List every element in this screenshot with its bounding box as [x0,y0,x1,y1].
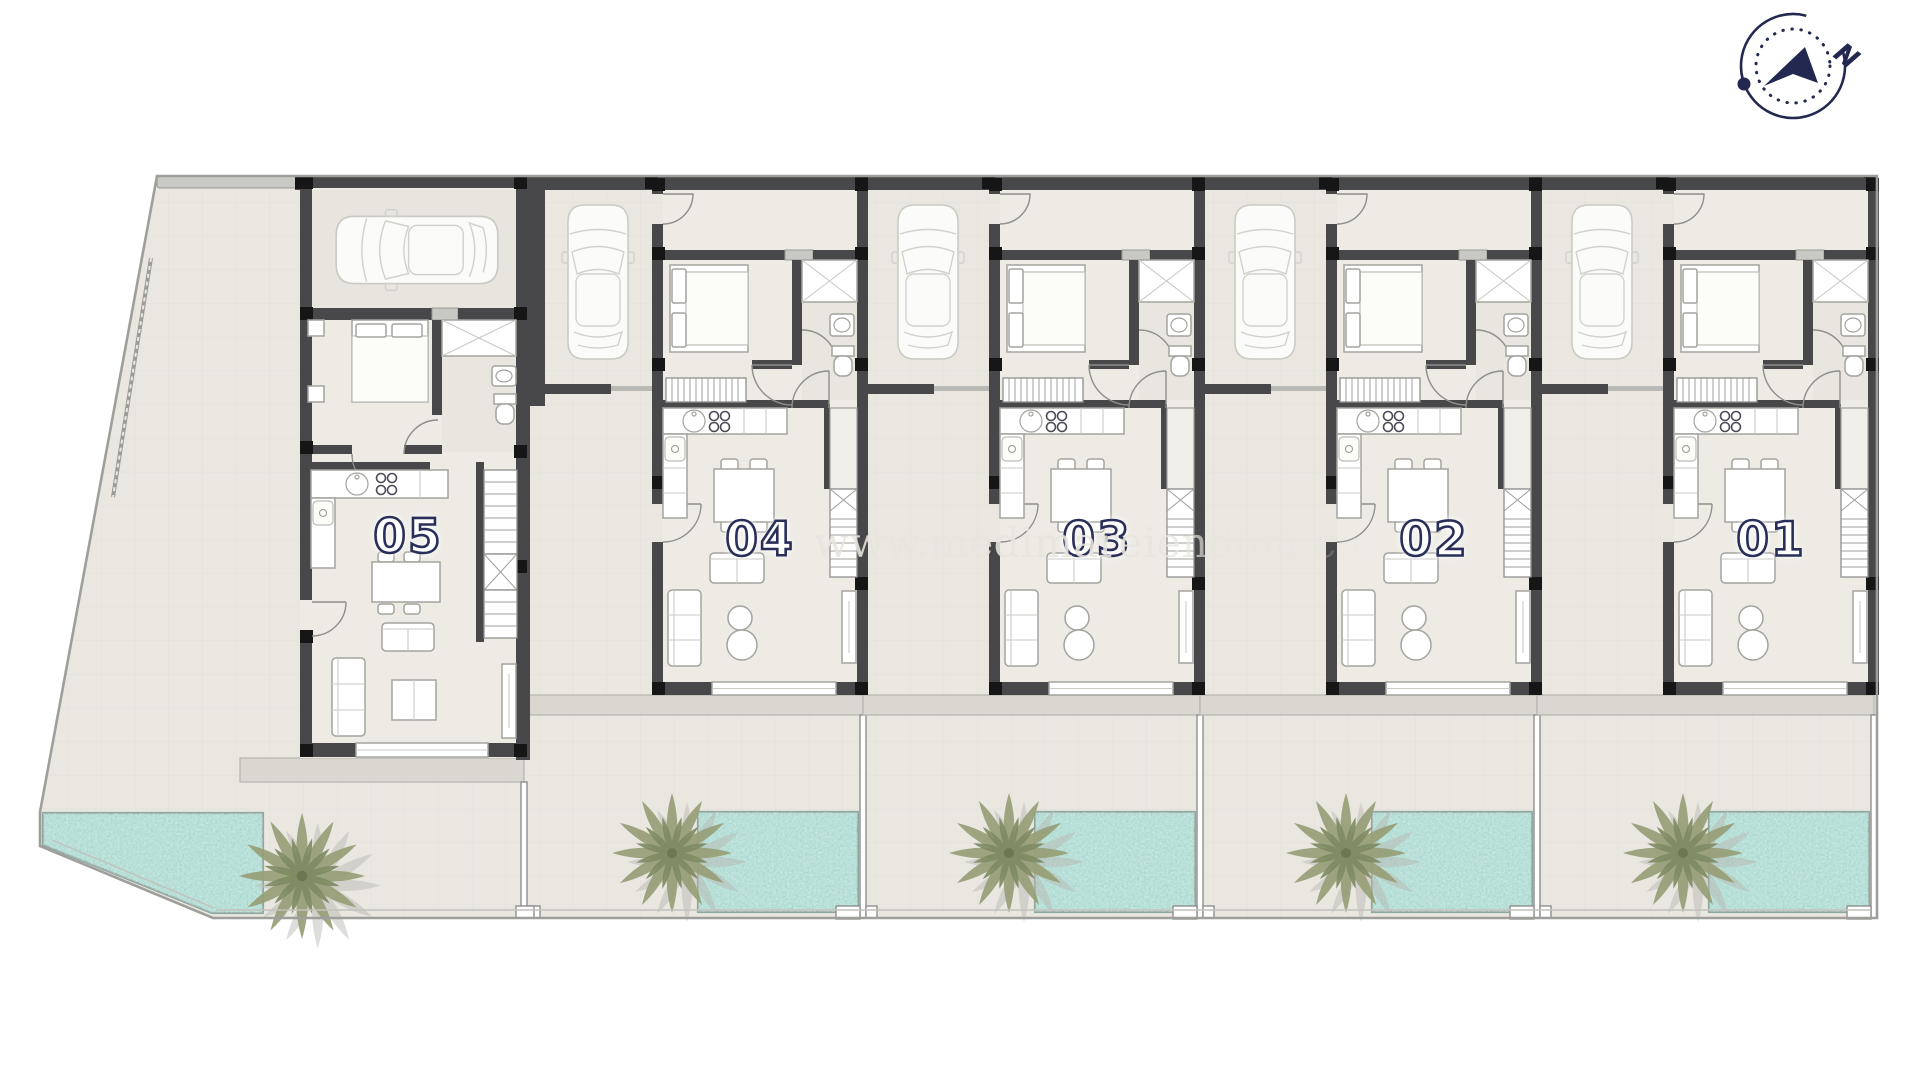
compass-north-label: N [1828,37,1865,76]
driveway-car-unit-04 [562,205,634,359]
unit-01-house [1663,178,1879,695]
driveway-car-unit-03 [892,205,964,359]
watermark-text: www.medimareiendom.com [814,519,1401,567]
unit-05-house [300,176,545,760]
unit-label-05: 05 [373,510,442,565]
floor-plan-page: N 05 04 03 02 01 www.medimareiendom.com [0,0,1920,1080]
driveway-car-unit-01 [1566,205,1638,359]
unit-04-house [652,178,868,695]
unit-label-01: 01 [1736,513,1805,568]
pool-unit-05 [43,813,263,913]
driveway-car-unit-02 [1229,205,1301,359]
unit-label-02: 02 [1399,513,1468,568]
unit-02-house [1326,178,1542,695]
unit-03-house [989,178,1205,695]
compass-icon: N [1729,2,1865,129]
garage-car-icon [336,210,498,291]
unit-label-04: 04 [725,513,794,568]
